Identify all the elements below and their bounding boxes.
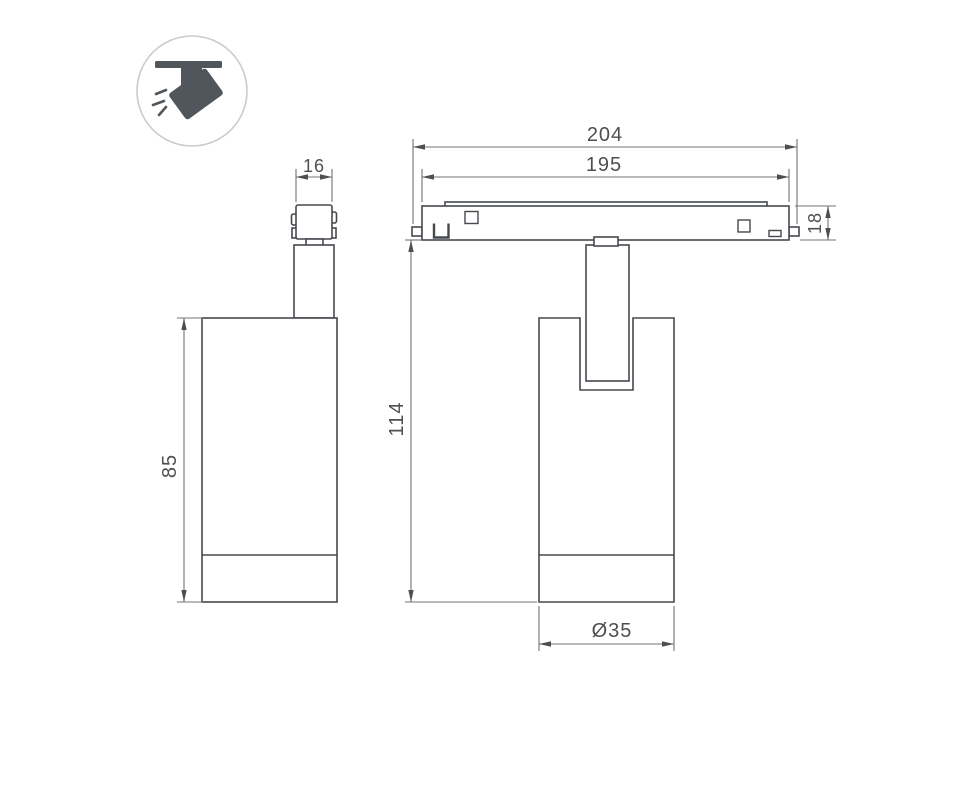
dimension-label-diameter: Ø35: [592, 620, 633, 642]
dimension-label-114: 114: [386, 402, 408, 437]
dimension-track-height: 18: [795, 206, 836, 240]
dimension-label-85: 85: [159, 454, 181, 478]
side-track-adapter: [296, 205, 332, 239]
side-stem: [294, 245, 334, 318]
dimension-label-204: 204: [587, 124, 623, 146]
front-stem: [586, 245, 629, 381]
dimension-overall-height: 114: [386, 240, 537, 602]
dimension-drawing: 16 85 204: [0, 0, 978, 800]
track-spotlight-icon: [137, 36, 247, 146]
front-track-tab-right: [789, 227, 799, 236]
dimension-label-18: 18: [805, 212, 825, 234]
dimension-label-16: 16: [303, 156, 325, 176]
dimension-label-195: 195: [586, 154, 622, 176]
front-track-tab-left: [412, 227, 422, 236]
front-view: 204 195 18 114 Ø35: [386, 124, 836, 651]
front-neck: [594, 237, 618, 246]
side-body: [202, 318, 337, 602]
dimension-body-height: 85: [159, 318, 203, 602]
dimension-drawing-canvas: 16 85 204: [0, 0, 978, 800]
side-view: 16 85: [159, 156, 337, 602]
dimension-track-inner-length: 195: [422, 154, 789, 202]
dimension-body-diameter: Ø35: [539, 606, 674, 651]
dimension-adapter-width: 16: [296, 156, 332, 202]
